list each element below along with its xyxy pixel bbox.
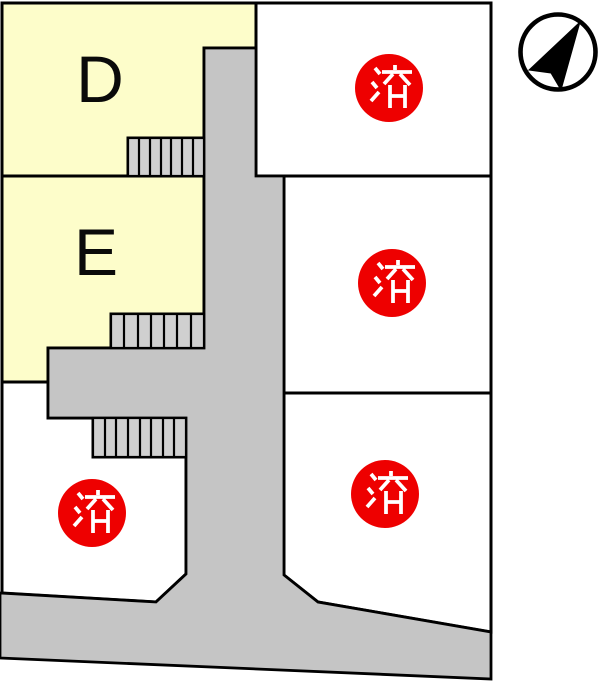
sold-kanji-icon xyxy=(367,258,417,308)
stairs-southwest-plot xyxy=(93,418,186,457)
stairs-plot-d xyxy=(128,138,204,176)
plot-e-label: E xyxy=(64,216,128,288)
plot-d-label: D xyxy=(68,43,132,115)
north-arrow-icon xyxy=(521,15,596,91)
sold-stamp-east: 済 xyxy=(358,249,426,317)
lot-map: D E 済 済 済 済 xyxy=(0,0,600,684)
sold-stamp-southwest: 済 xyxy=(58,479,126,547)
sold-kanji-icon xyxy=(67,488,117,538)
sold-stamp-northeast: 済 xyxy=(355,54,423,122)
sold-stamp-southeast: 済 xyxy=(351,460,419,528)
sold-kanji-icon xyxy=(364,63,414,113)
sold-kanji-icon xyxy=(360,469,410,519)
stairs-plot-e xyxy=(111,314,204,348)
